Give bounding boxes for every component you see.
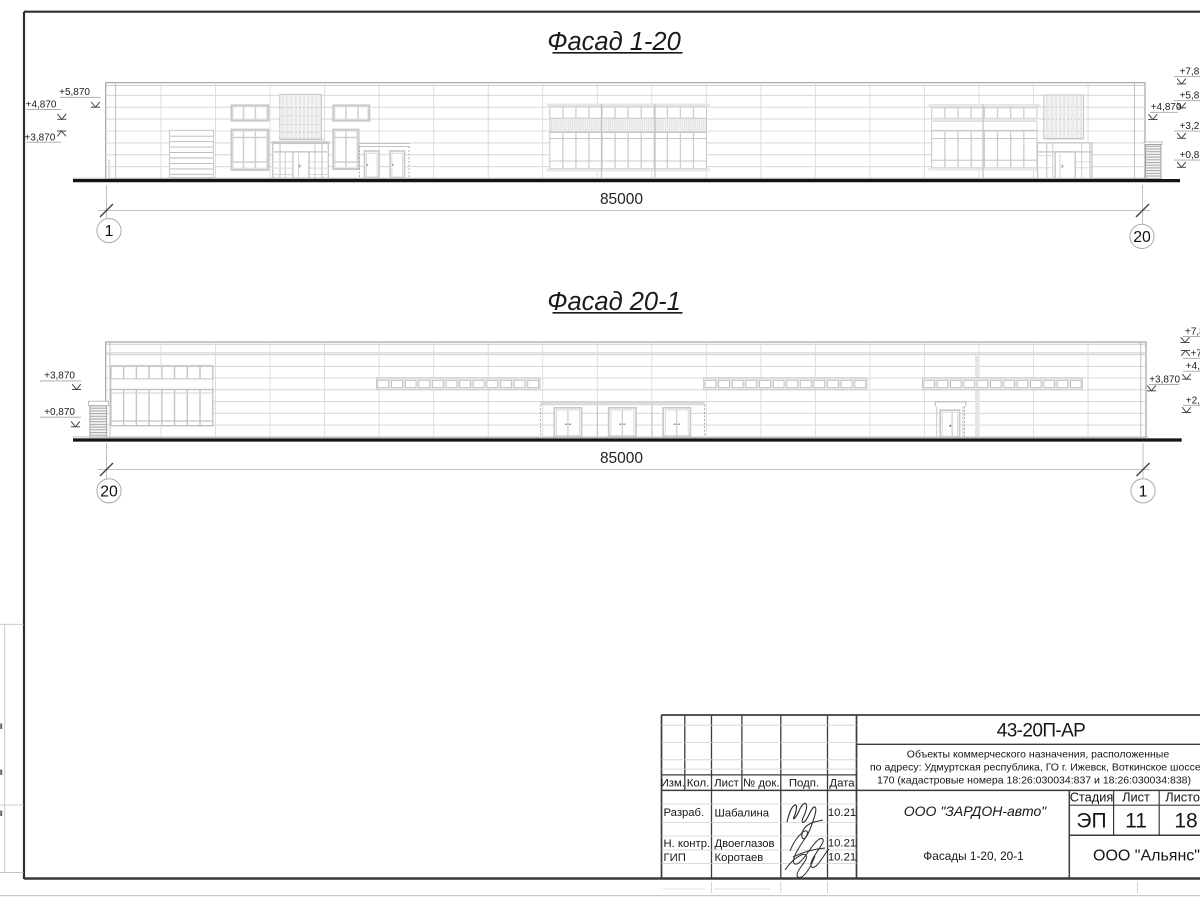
svg-text:11: 11: [1125, 810, 1147, 833]
svg-text:85000: 85000: [600, 191, 643, 208]
svg-text:Объекты коммерческого назначен: Объекты коммерческого назначения, распол…: [907, 749, 1170, 761]
svg-text:10.21: 10.21: [828, 807, 856, 819]
svg-text:+4,870: +4,870: [1151, 102, 1182, 113]
svg-text:18: 18: [1174, 810, 1197, 833]
svg-text:1: 1: [105, 223, 114, 240]
svg-text:+4,870: +4,870: [26, 99, 57, 110]
svg-text:+3,870: +3,870: [44, 371, 75, 382]
svg-text:Шабалина: Шабалина: [715, 808, 770, 820]
svg-text:+3,270: +3,270: [1180, 121, 1200, 132]
svg-text:85000: 85000: [600, 450, 643, 467]
svg-text:170 (кадастровые номера 18:26:: 170 (кадастровые номера 18:26:030034:837…: [877, 774, 1191, 786]
svg-text:+7,870: +7,870: [1180, 67, 1200, 78]
svg-text:ЭП: ЭП: [1076, 810, 1106, 833]
svg-text:Фасад 20-1: Фасад 20-1: [547, 288, 681, 316]
svg-text:+5,870: +5,870: [59, 87, 90, 98]
svg-text:Лист: Лист: [714, 778, 740, 790]
svg-text:Н. контр.: Н. контр.: [664, 838, 711, 850]
svg-text:Двоеглазов: Двоеглазов: [715, 838, 775, 850]
svg-text:Стадия: Стадия: [1070, 790, 1114, 805]
svg-text:+2,100: +2,100: [1186, 395, 1200, 406]
svg-text:20: 20: [100, 483, 118, 500]
svg-text:Разраб.: Разраб.: [664, 807, 705, 819]
svg-text:Кол.: Кол.: [687, 778, 710, 790]
svg-text:ООО "Альянс": ООО "Альянс": [1093, 848, 1200, 865]
svg-text:Лист: Лист: [1122, 790, 1150, 805]
svg-text:ГИП: ГИП: [664, 852, 686, 864]
svg-text:Коротаев: Коротаев: [715, 852, 764, 864]
svg-text:20: 20: [1133, 229, 1151, 246]
svg-text:+4,870: +4,870: [1186, 361, 1200, 372]
svg-text:ООО "ЗАРДОН-авто": ООО "ЗАРДОН-авто": [904, 803, 1047, 819]
svg-text:+0,870: +0,870: [1180, 150, 1200, 161]
svg-text:1: 1: [1139, 483, 1148, 500]
svg-text:43-20П-АР: 43-20П-АР: [997, 720, 1086, 741]
svg-text:10.21: 10.21: [828, 838, 856, 850]
svg-text:по адресу: Удмуртская республи: по адресу: Удмуртская республика, ГО г. …: [870, 762, 1200, 774]
svg-text:№ док.: № док.: [743, 778, 780, 790]
svg-text:Подп.: Подп.: [789, 778, 819, 790]
svg-text:+7,540: +7,540: [1191, 349, 1200, 360]
svg-text:Изм.: Изм.: [661, 778, 685, 790]
svg-text:Фасады 1-20, 20-1: Фасады 1-20, 20-1: [923, 849, 1023, 863]
svg-text:Дата: Дата: [829, 778, 855, 790]
svg-text:+3,870: +3,870: [1149, 375, 1180, 386]
svg-text:+5,870: +5,870: [1180, 91, 1200, 102]
svg-text:+7,870: +7,870: [1185, 326, 1200, 337]
svg-text:Фасад 1-20: Фасад 1-20: [547, 28, 681, 56]
svg-text:10.21: 10.21: [828, 852, 856, 864]
svg-text:+0,870: +0,870: [44, 407, 75, 418]
svg-text:Листов: Листов: [1165, 790, 1200, 805]
